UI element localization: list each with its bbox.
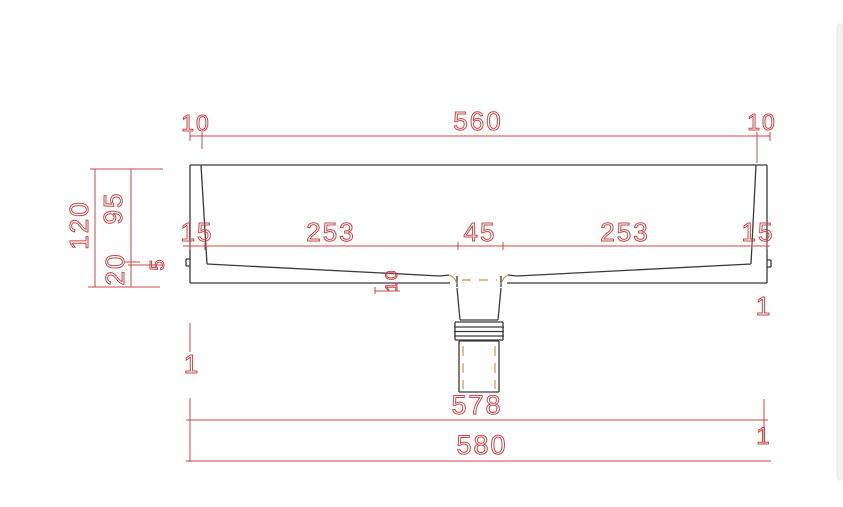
dim-bottom-outer-width: 580	[456, 430, 507, 460]
basin-body-outline	[186, 165, 771, 392]
dim-side-step: 5	[147, 257, 169, 270]
dim-drain-offset: 10	[382, 269, 401, 292]
dim-top-right-offset: 10	[747, 109, 777, 135]
dim-side-total-height: 120	[64, 200, 94, 249]
drain-thread-ridges	[454, 322, 504, 340]
drain-corner-chamfers	[449, 275, 508, 284]
basin-section-drawing: 10 560 10 15 253 45 253 15 120 95 20 5 1…	[0, 0, 843, 507]
page-edge-strip	[837, 24, 843, 480]
dim-line-top-chain	[190, 132, 770, 163]
dim-bottom-inner-width: 578	[451, 390, 502, 420]
dim-top-width: 560	[453, 106, 502, 136]
dim-inner-right-span: 253	[600, 217, 649, 247]
dim-inner-drain-width: 45	[464, 217, 497, 247]
dim-mark-left: 1	[184, 349, 200, 379]
dim-inner-left-span: 253	[306, 217, 355, 247]
dim-side-depth: 95	[98, 192, 128, 225]
dim-side-base-thickness: 20	[100, 253, 130, 286]
cad-drawing-page: 10 560 10 15 253 45 253 15 120 95 20 5 1…	[0, 0, 843, 507]
pipe-inner-dashed-lines	[463, 346, 495, 389]
dim-inner-left-wall: 15	[181, 217, 214, 247]
dim-top-left-offset: 10	[181, 110, 211, 136]
dim-mark-right-upper: 1	[756, 291, 772, 321]
dim-inner-right-wall: 15	[742, 217, 775, 247]
dim-mark-right-lower: 1	[756, 423, 771, 450]
basin-outline	[186, 165, 771, 392]
